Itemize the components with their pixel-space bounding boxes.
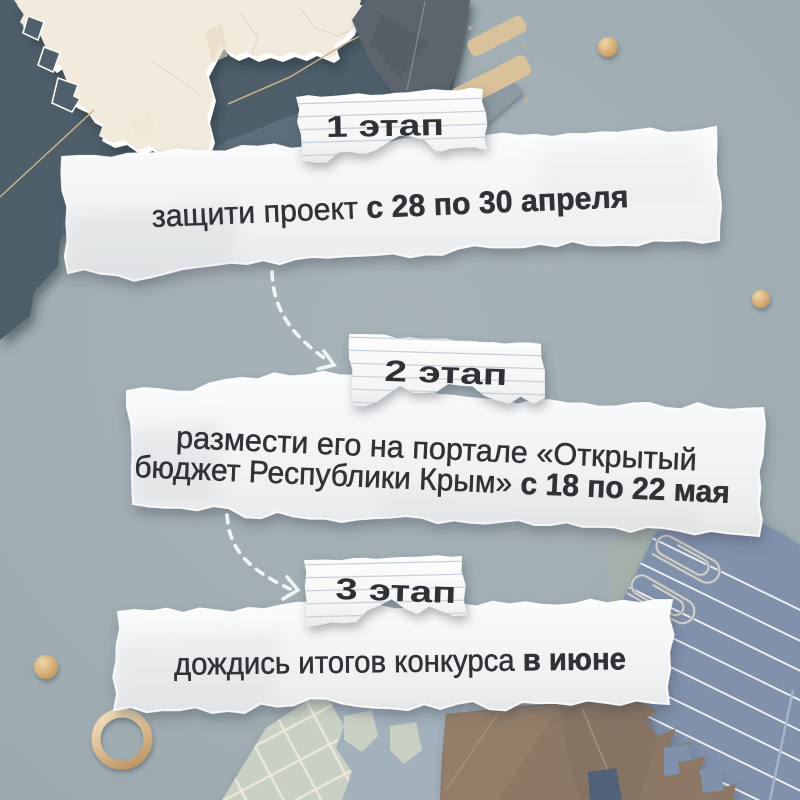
svg-text:3 этап: 3 этап <box>335 573 457 610</box>
svg-text:1 этап: 1 этап <box>326 109 445 144</box>
svg-text:дождись итогов конкурса в июне: дождись итогов конкурса в июне <box>174 641 626 682</box>
svg-text:2 этап: 2 этап <box>384 355 508 392</box>
